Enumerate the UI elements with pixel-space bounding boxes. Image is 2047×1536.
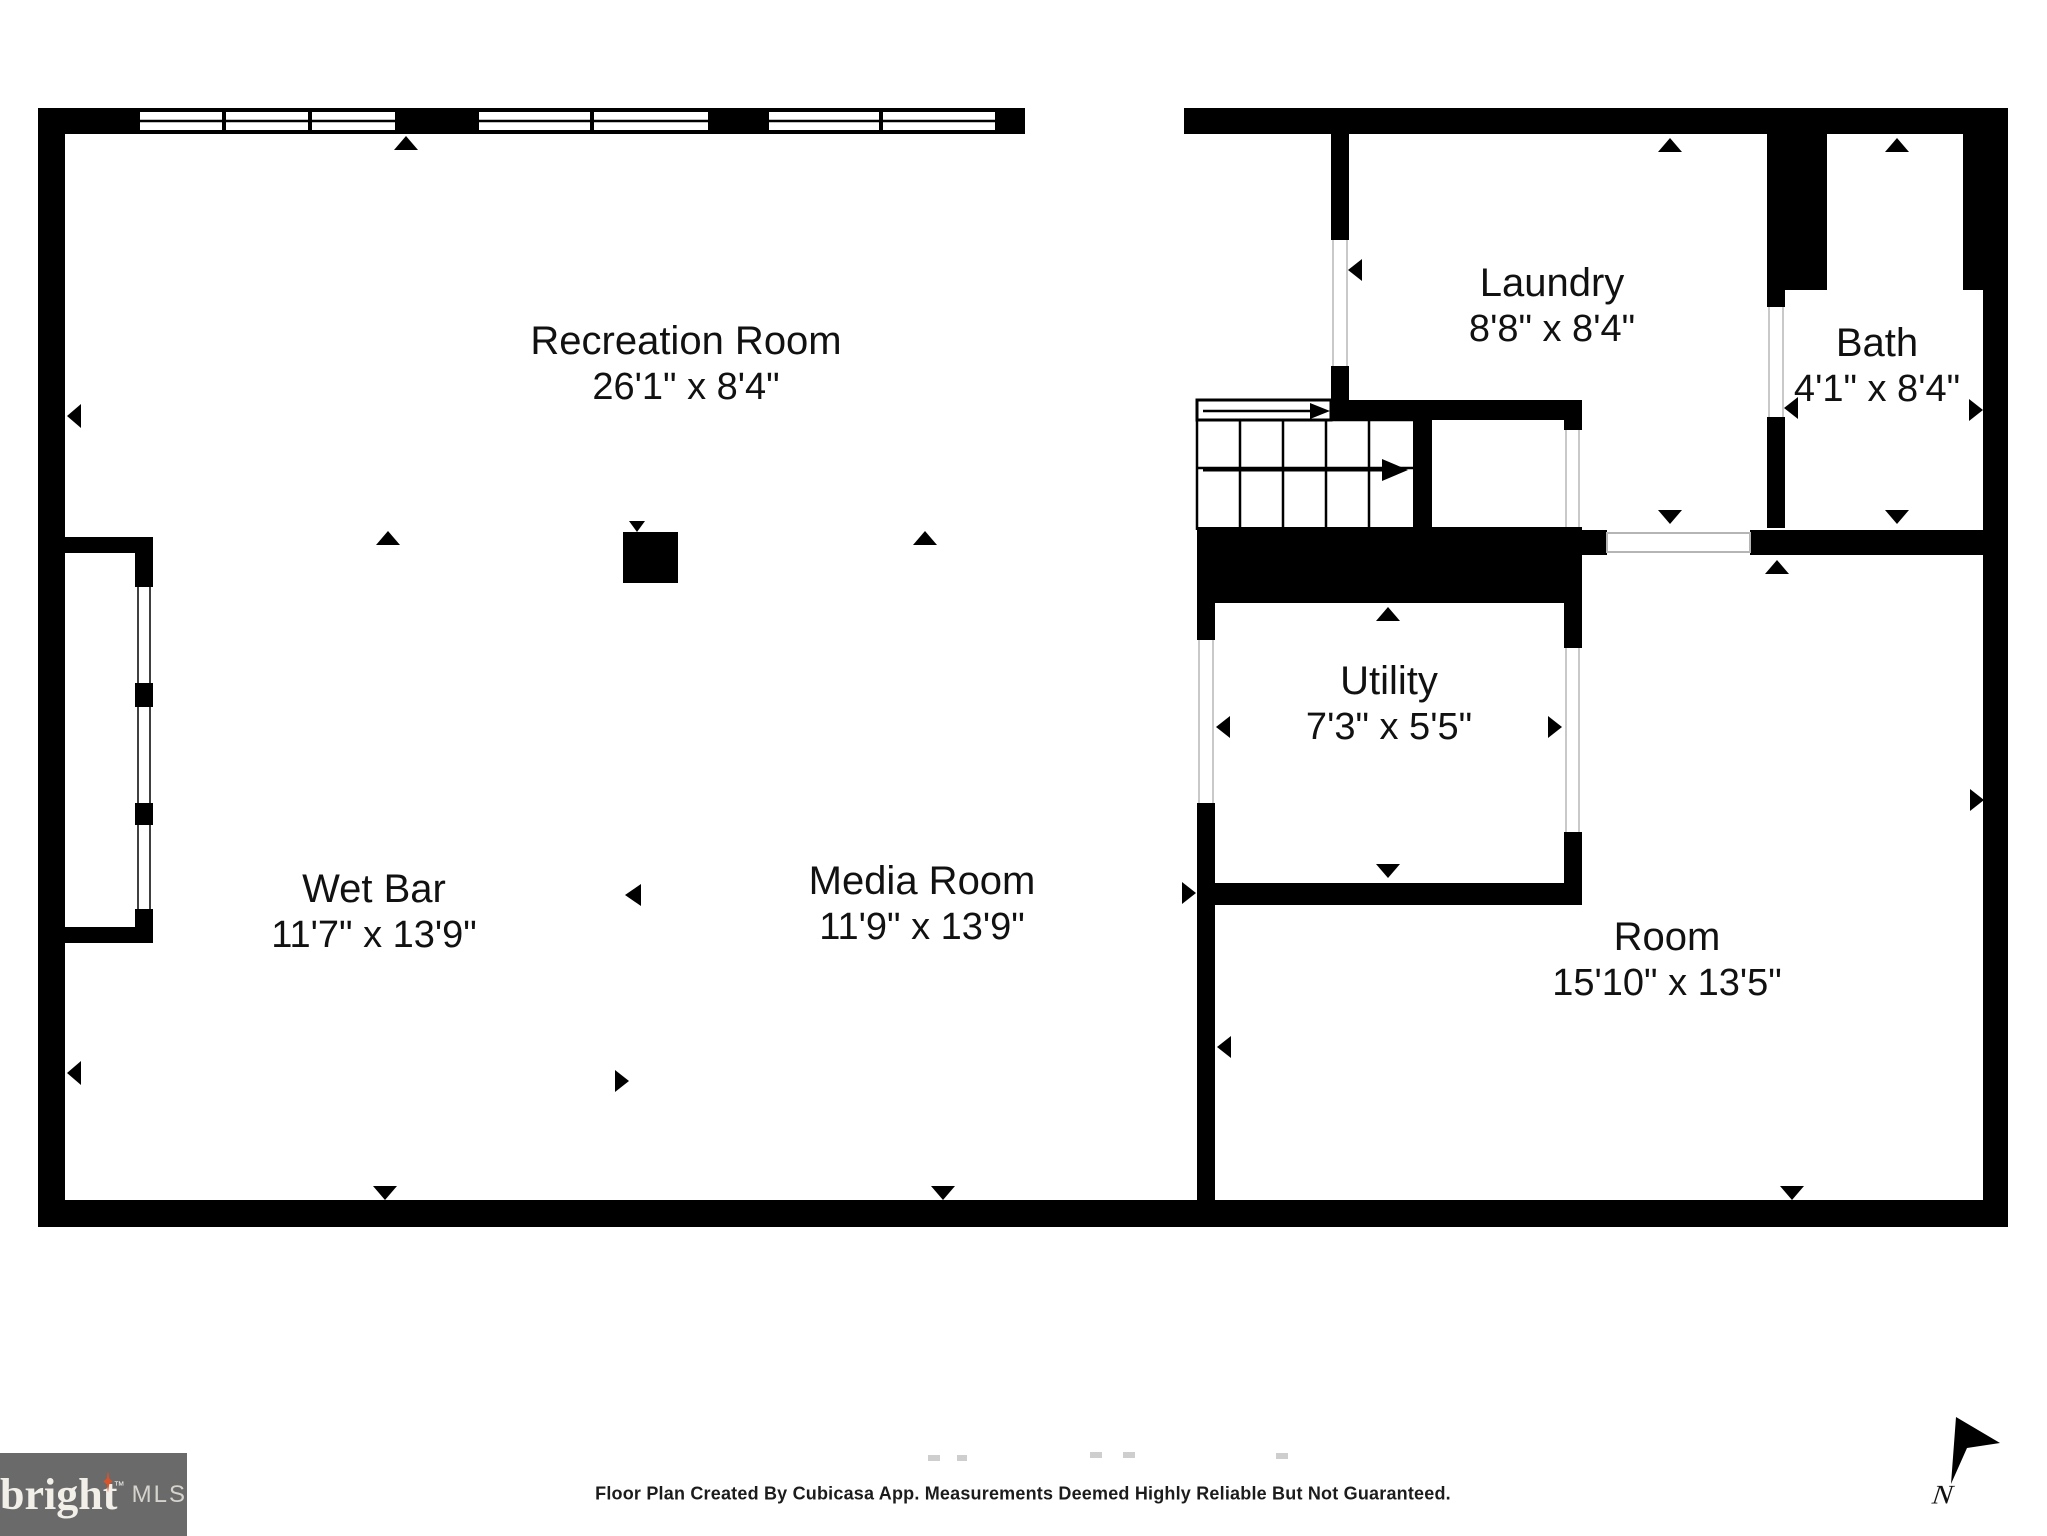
wall-utility-right-bottom — [1564, 832, 1582, 883]
room-name: Utility — [1306, 658, 1472, 704]
wall-utility-bottom — [1197, 883, 1582, 905]
room-name: Recreation Room — [530, 318, 841, 364]
marker-left-laundry-door — [1348, 259, 1362, 281]
support-post — [623, 532, 678, 583]
marker-left-wall-lower — [67, 1061, 81, 1085]
room-label-room: Room 15'10" x 13'5" — [1552, 914, 1782, 1006]
north-arrow-icon — [1951, 1417, 2000, 1484]
room-name: Laundry — [1469, 260, 1635, 306]
room-label-bath: Bath 4'1" x 8'4" — [1794, 320, 1960, 412]
wall-bath-thick-block — [1785, 134, 1827, 290]
wall-room-top-right — [1750, 530, 1983, 555]
marker-right-middle-wall — [1182, 882, 1196, 904]
room-label-utility: Utility 7'3" x 5'5" — [1306, 658, 1472, 750]
room-dimensions: 15'10" x 13'5" — [1552, 960, 1782, 1006]
marker-down-utility-bottom — [1376, 864, 1400, 878]
wall-bath-right-block — [1963, 134, 1983, 290]
counter-corner-bottom — [135, 909, 153, 943]
window-band-2 — [477, 110, 710, 132]
room-name: Wet Bar — [271, 866, 477, 912]
wall-right-exterior — [1983, 108, 2008, 1227]
marker-down-bath — [1885, 510, 1909, 524]
room-dimensions: 11'7" x 13'9" — [271, 912, 477, 958]
wall-middle-lower — [1197, 905, 1215, 1200]
wall-utility-right-top — [1564, 603, 1582, 648]
room-dimensions: 26'1" x 8'4" — [530, 364, 841, 410]
marker-up-utility-top — [1376, 607, 1400, 621]
windows — [138, 110, 997, 132]
room-label-recreation-room: Recreation Room 26'1" x 8'4" — [530, 318, 841, 410]
stair-treads — [1197, 420, 1413, 530]
wall-room-top-left-stub — [1582, 530, 1607, 555]
wall-utility-left-top — [1197, 603, 1215, 640]
room-dimensions: 7'3" x 5'5" — [1306, 704, 1472, 750]
wall-top-left-segment — [38, 108, 138, 134]
stair-direction-arrow-lower — [1203, 459, 1408, 481]
wall-top-between-windows-1 — [397, 108, 477, 134]
counter-track-lines — [138, 587, 150, 909]
stairs — [1197, 400, 1413, 530]
door-markers — [67, 136, 1984, 1200]
wall-band-under-stairs — [1197, 527, 1582, 603]
marker-up-room-door — [1765, 560, 1789, 574]
walls — [38, 108, 2008, 1227]
room-label-wet-bar: Wet Bar 11'7" x 13'9" — [271, 866, 477, 958]
marker-up-top-wall — [394, 136, 418, 150]
bright-mls-logo: bright™MLS — [0, 1453, 187, 1536]
marker-right-room-wall — [1970, 789, 1984, 811]
floor-plan: Recreation Room 26'1" x 8'4" Laundry 8'8… — [0, 0, 2047, 1536]
floor-plan-drawing — [0, 0, 2047, 1536]
trademark-symbol: ™ — [114, 1480, 125, 1492]
marker-left-utility-opening — [1216, 716, 1230, 738]
wall-top-between-windows-2 — [710, 108, 767, 134]
logo-brand-text: bright — [0, 1473, 117, 1517]
room-name: Room — [1552, 914, 1782, 960]
marker-right-media — [615, 1070, 629, 1092]
wall-closet-corner-cap — [1564, 400, 1582, 430]
wall-left-exterior — [38, 108, 65, 1227]
marker-left-room-wall — [1217, 1036, 1231, 1058]
wall-bath-left-upper — [1767, 134, 1785, 307]
room-doorway-threshold — [1607, 533, 1750, 552]
wet-bar-counter — [65, 537, 153, 943]
room-name: Media Room — [809, 858, 1036, 904]
logo-suffix-text: MLS — [132, 1483, 187, 1507]
wall-stair-landing — [1331, 400, 1582, 420]
marker-left-wall-upper — [67, 404, 81, 428]
marker-left-divider — [625, 884, 641, 906]
marker-up-divider-1 — [376, 531, 400, 545]
marker-up-laundry — [1658, 138, 1682, 152]
faint-marks — [928, 1452, 1288, 1461]
room-name: Bath — [1794, 320, 1960, 366]
marker-right-bath-wall — [1969, 399, 1983, 421]
wall-utility-left-bottom — [1197, 803, 1215, 883]
marker-down-room-door — [1658, 510, 1682, 524]
marker-down-media-window — [931, 1186, 955, 1200]
marker-down-room-window — [1780, 1186, 1804, 1200]
marker-up-bath — [1885, 138, 1909, 152]
marker-right-utility-opening — [1548, 716, 1562, 738]
marker-up-divider-2 — [913, 531, 937, 545]
wall-bath-left-lower — [1767, 417, 1785, 528]
room-dimensions: 4'1" x 8'4" — [1794, 366, 1960, 412]
wall-laundry-left-upper — [1331, 134, 1349, 240]
room-label-laundry: Laundry 8'8" x 8'4" — [1469, 260, 1635, 352]
window-band-1 — [138, 110, 397, 132]
wall-laundry-left-lower — [1331, 366, 1349, 400]
counter-corner-top — [135, 553, 153, 587]
room-dimensions: 8'8" x 8'4" — [1469, 306, 1635, 352]
wall-top-end-cap — [997, 108, 1025, 134]
disclaimer-text: Floor Plan Created By Cubicasa App. Meas… — [595, 1484, 1451, 1505]
room-label-media-room: Media Room 11'9" x 13'9" — [809, 858, 1036, 950]
marker-down-wetbar-window — [373, 1186, 397, 1200]
room-dimensions: 11'9" x 13'9" — [809, 904, 1036, 950]
window-band-3 — [767, 110, 997, 132]
wall-top-right-section — [1184, 108, 2008, 134]
marker-down-post — [629, 521, 645, 532]
wall-stairs-right — [1413, 420, 1432, 530]
wall-bottom-exterior — [38, 1200, 2008, 1227]
counter-stub-top — [65, 537, 153, 553]
